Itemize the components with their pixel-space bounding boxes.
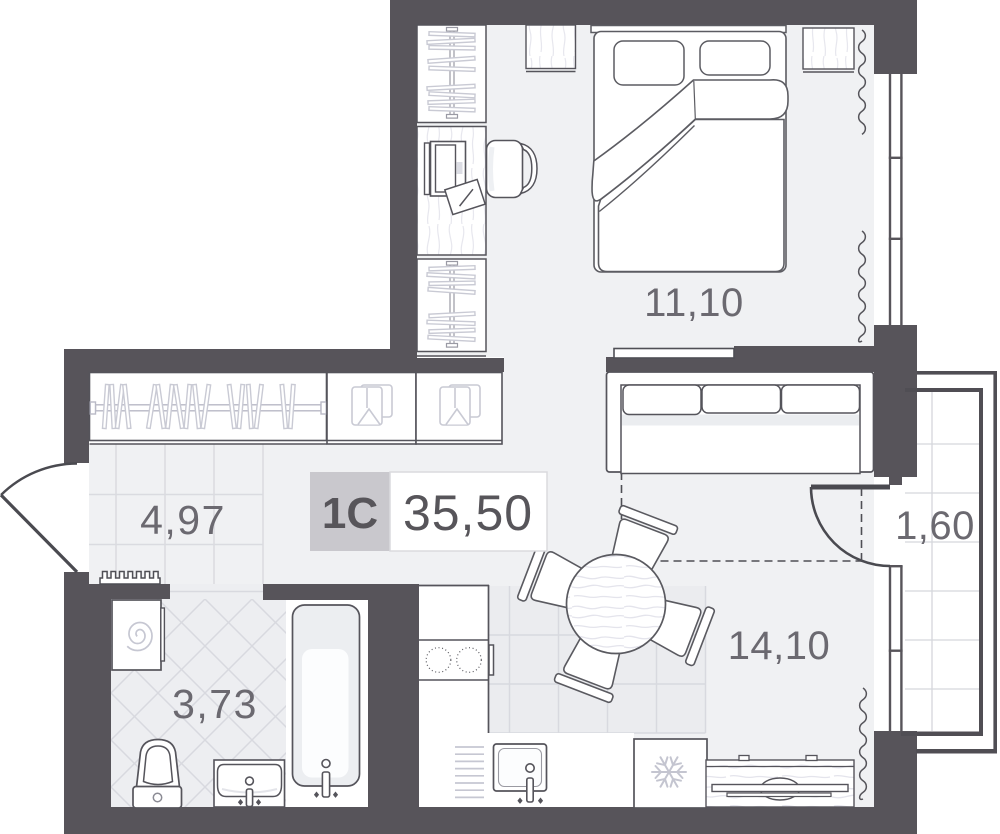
svg-text:14,10: 14,10 xyxy=(728,624,831,668)
svg-text:4,97: 4,97 xyxy=(140,497,226,543)
svg-text:3,73: 3,73 xyxy=(172,681,258,727)
svg-text:35,50: 35,50 xyxy=(403,485,533,541)
svg-text:1C: 1C xyxy=(322,489,378,538)
svg-text:11,10: 11,10 xyxy=(644,281,744,325)
svg-text:1,60: 1,60 xyxy=(895,504,975,548)
